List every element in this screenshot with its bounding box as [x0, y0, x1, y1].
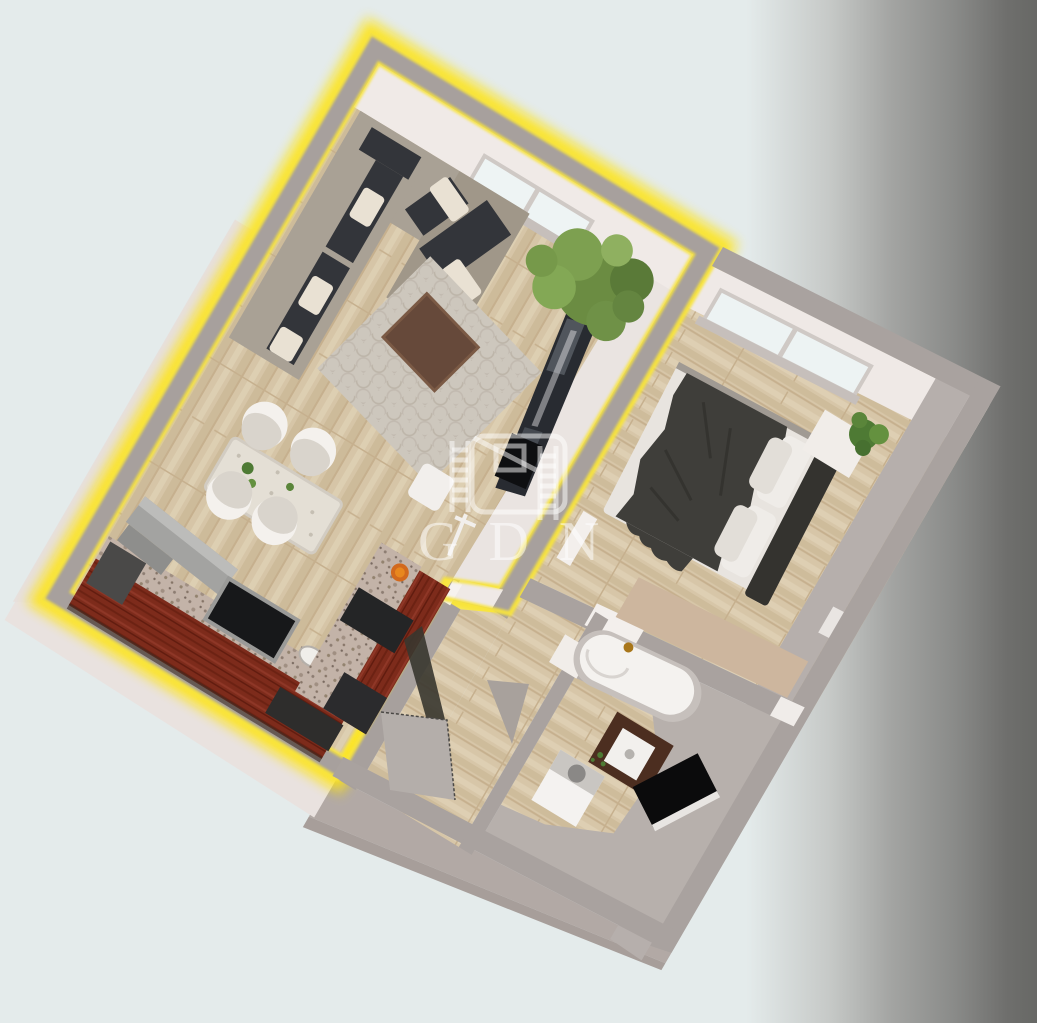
svg-text:GDN: GDN [418, 511, 629, 573]
